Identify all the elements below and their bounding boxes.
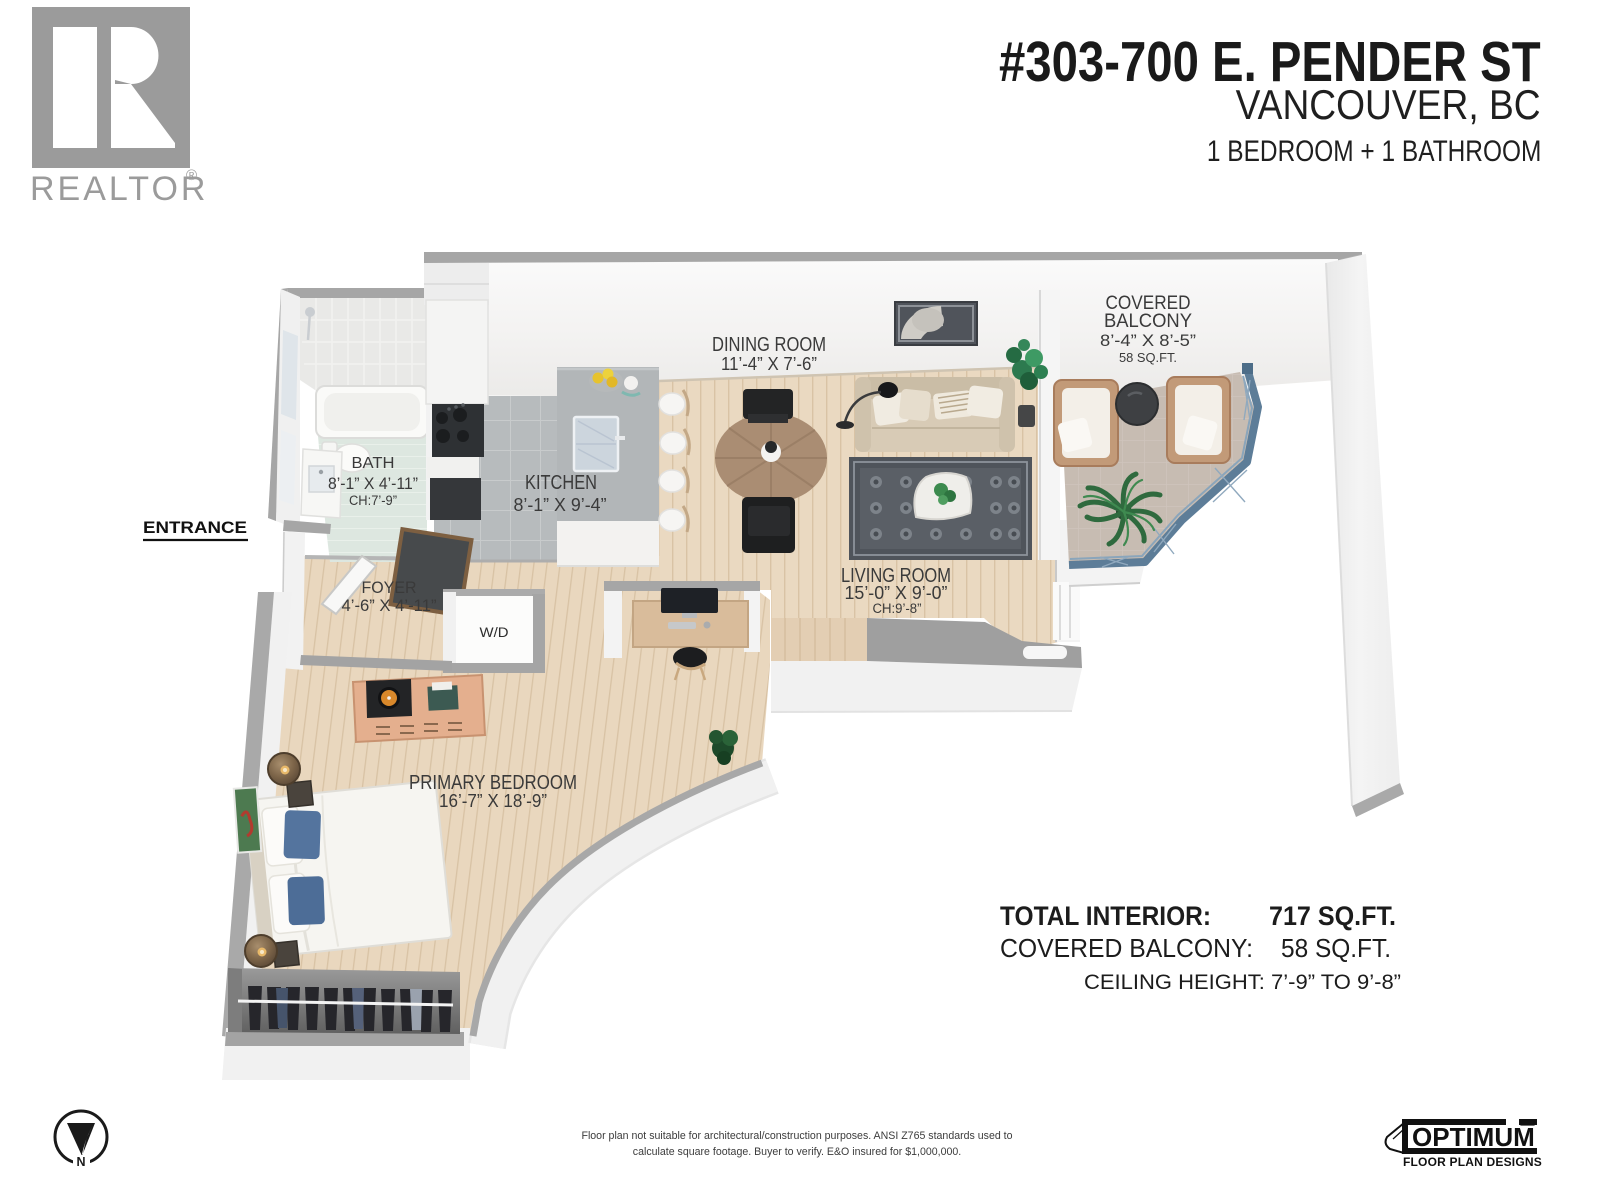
svg-text:W/D: W/D bbox=[480, 624, 509, 640]
svg-text:11’-4” X 7’-6”: 11’-4” X 7’-6” bbox=[721, 354, 817, 374]
svg-text:717 SQ.FT.: 717 SQ.FT. bbox=[1269, 901, 1396, 931]
svg-text:®: ® bbox=[186, 167, 197, 184]
svg-text:CEILING HEIGHT: 7’-9” TO 9’-8”: CEILING HEIGHT: 7’-9” TO 9’-8” bbox=[1084, 971, 1401, 994]
svg-text:CH:7’-9”: CH:7’-9” bbox=[349, 493, 397, 508]
svg-text:4’-6” X 4’-11”: 4’-6” X 4’-11” bbox=[342, 596, 437, 615]
svg-text:calculate square footage. Buye: calculate square footage. Buyer to verif… bbox=[633, 1146, 961, 1158]
svg-text:CH:9’-8”: CH:9’-8” bbox=[873, 601, 922, 616]
svg-text:58 SQ.FT.: 58 SQ.FT. bbox=[1119, 350, 1177, 365]
svg-text:15’-0” X 9’-0”: 15’-0” X 9’-0” bbox=[845, 583, 948, 603]
svg-text:FOYER: FOYER bbox=[362, 578, 417, 597]
svg-text:8’-1” X 9’-4”: 8’-1” X 9’-4” bbox=[514, 495, 607, 515]
svg-text:8’-1” X 4’-11”: 8’-1” X 4’-11” bbox=[328, 474, 418, 493]
svg-text:BATH: BATH bbox=[352, 455, 395, 472]
svg-text:BALCONY: BALCONY bbox=[1104, 311, 1192, 332]
svg-text:FLOOR PLAN DESIGNS: FLOOR PLAN DESIGNS bbox=[1403, 1155, 1542, 1169]
svg-text:COVERED BALCONY:: COVERED BALCONY: bbox=[1000, 933, 1253, 963]
svg-text:Floor plan not suitable for ar: Floor plan not suitable for architectura… bbox=[581, 1130, 1012, 1142]
svg-text:REALTOR: REALTOR bbox=[30, 170, 208, 208]
svg-text:KITCHEN: KITCHEN bbox=[525, 472, 597, 494]
svg-text:TOTAL INTERIOR:: TOTAL INTERIOR: bbox=[1000, 901, 1211, 931]
svg-text:58 SQ.FT.: 58 SQ.FT. bbox=[1281, 933, 1391, 963]
svg-text:8’-4” X 8’-5”: 8’-4” X 8’-5” bbox=[1100, 331, 1196, 350]
svg-text:DINING ROOM: DINING ROOM bbox=[712, 334, 826, 356]
svg-text:N: N bbox=[76, 1155, 85, 1169]
svg-text:ENTRANCE: ENTRANCE bbox=[143, 518, 247, 537]
svg-text:OPTIMUM: OPTIMUM bbox=[1412, 1122, 1535, 1152]
svg-text:16’-7” X 18’-9”: 16’-7” X 18’-9” bbox=[439, 791, 547, 811]
